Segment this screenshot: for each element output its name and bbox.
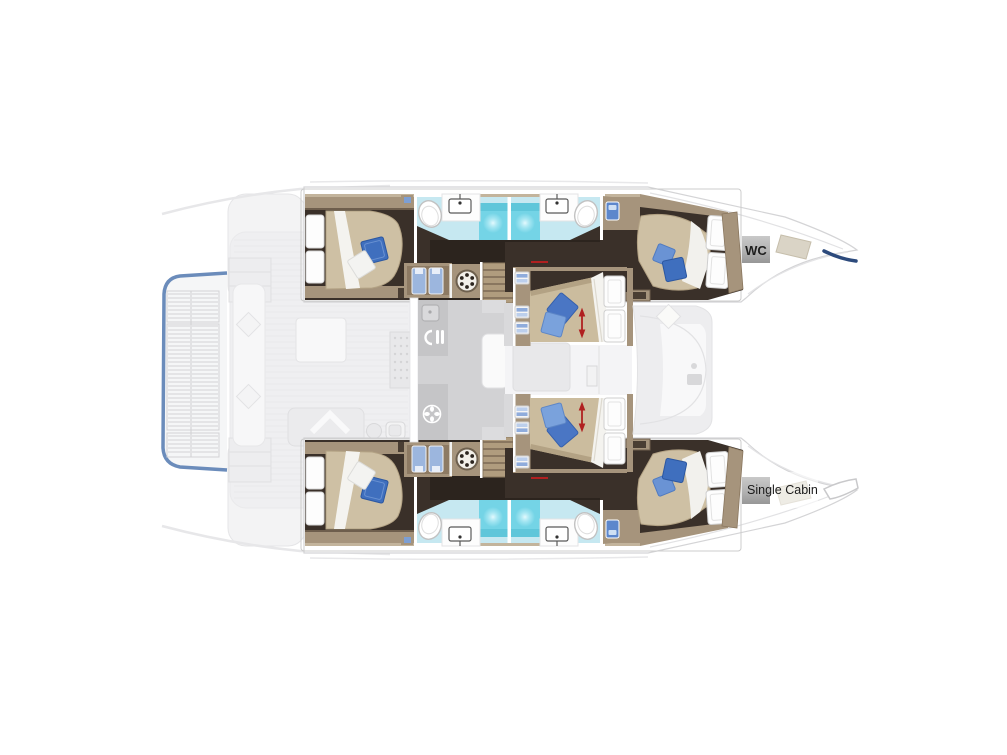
svg-text:WC: WC <box>745 243 767 258</box>
svg-text:Single Cabin: Single Cabin <box>747 483 818 497</box>
